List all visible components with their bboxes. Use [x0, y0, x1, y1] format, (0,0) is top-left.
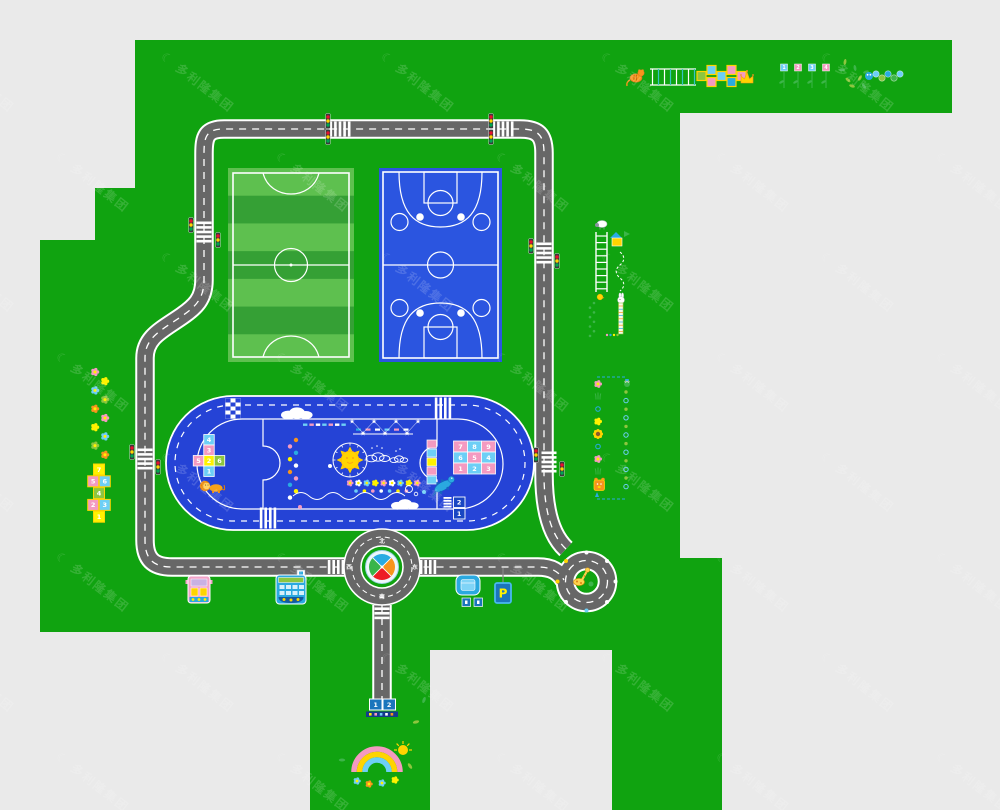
svg-text:★: ★ — [415, 418, 421, 426]
svg-text:★: ★ — [371, 418, 377, 426]
traffic-light-icon — [326, 130, 331, 145]
sun-dial-game — [333, 443, 367, 477]
svg-text:6: 6 — [217, 457, 222, 465]
roundabout-label-east: 东 — [412, 563, 418, 571]
roundabout-label-north: 北 — [379, 537, 385, 545]
number-grid: 789654123 — [454, 441, 496, 474]
svg-text:3: 3 — [810, 65, 813, 71]
svg-text:★: ★ — [382, 430, 388, 438]
svg-text:5: 5 — [91, 478, 96, 486]
svg-text:2: 2 — [91, 501, 96, 509]
roundabout-label-west: 西 — [346, 563, 352, 571]
svg-text:1: 1 — [373, 701, 378, 709]
stall-marker-glyph — [465, 601, 468, 605]
svg-text:1: 1 — [207, 468, 212, 476]
sunflower-icon — [593, 429, 603, 439]
traffic-light-icon — [326, 114, 331, 129]
start-line-group: 12 — [366, 699, 398, 717]
frog-icon — [624, 381, 630, 387]
traffic-light-icon — [489, 130, 494, 145]
svg-text:★: ★ — [393, 418, 399, 426]
parking-sign-letter: P — [499, 587, 508, 601]
checkered-finish-line — [226, 399, 241, 419]
svg-text:2: 2 — [472, 465, 477, 473]
stall-marker-glyph — [477, 601, 480, 605]
traffic-light-icon — [560, 462, 565, 477]
svg-text:4: 4 — [486, 454, 491, 462]
pink-bus-icon — [186, 576, 213, 603]
traffic-light-icon — [489, 114, 494, 129]
svg-text:3: 3 — [486, 465, 491, 473]
traffic-light-icon — [130, 445, 135, 460]
roundabout: 北 南 西 东 — [344, 529, 420, 605]
svg-text:2: 2 — [796, 65, 799, 71]
plan-drawing: ★★★★★★★43215678965412321 北 南 西 东 — [0, 0, 1000, 810]
bear-eye-top-right — [457, 213, 465, 221]
svg-text:2: 2 — [457, 499, 462, 507]
svg-text:3: 3 — [207, 447, 212, 455]
traffic-light-icon — [555, 254, 560, 269]
svg-text:6: 6 — [458, 454, 463, 462]
svg-text:2: 2 — [207, 457, 212, 465]
compass-center-dot — [381, 566, 384, 569]
svg-text:5: 5 — [196, 457, 201, 465]
svg-text:7: 7 — [458, 443, 463, 451]
svg-text:2: 2 — [387, 701, 392, 709]
svg-text:1: 1 — [782, 65, 785, 71]
svg-text:5: 5 — [472, 454, 477, 462]
svg-text:8: 8 — [472, 443, 477, 451]
traffic-light-icon — [216, 233, 221, 248]
bear-eye-bottom-left — [416, 309, 424, 317]
bear-eye-bottom-right — [457, 309, 465, 317]
colored-ladder-strip — [427, 440, 437, 484]
svg-text:3: 3 — [103, 501, 108, 509]
roundabout-label-south: 南 — [379, 593, 385, 601]
svg-text:★: ★ — [404, 430, 410, 438]
svg-text:★: ★ — [349, 418, 355, 426]
running-track: ★★★★★★★43215678965412321 — [166, 396, 534, 530]
bear-eye-top-left — [416, 213, 424, 221]
svg-text:7: 7 — [97, 466, 102, 474]
svg-text:9: 9 — [486, 443, 491, 451]
colored-dash-strip — [303, 424, 346, 426]
svg-text:★: ★ — [360, 430, 366, 438]
traffic-light-icon — [189, 218, 194, 233]
soccer-center-spot — [290, 264, 293, 267]
svg-text:4: 4 — [207, 436, 212, 444]
playground-site-plan: ★★★★★★★43215678965412321 北 南 西 东 — [0, 0, 1000, 810]
svg-text:1: 1 — [458, 465, 463, 473]
svg-text:6: 6 — [103, 478, 108, 486]
svg-text:1: 1 — [457, 510, 462, 518]
traffic-light-icon — [156, 460, 161, 475]
svg-text:4: 4 — [97, 489, 102, 497]
blue-car-icon — [456, 575, 480, 595]
traffic-light-icon — [529, 239, 534, 254]
traffic-light-icon — [534, 448, 539, 463]
bear-tile-icon — [594, 478, 605, 491]
svg-text:1: 1 — [97, 513, 102, 521]
measuring-ruler — [619, 303, 624, 334]
